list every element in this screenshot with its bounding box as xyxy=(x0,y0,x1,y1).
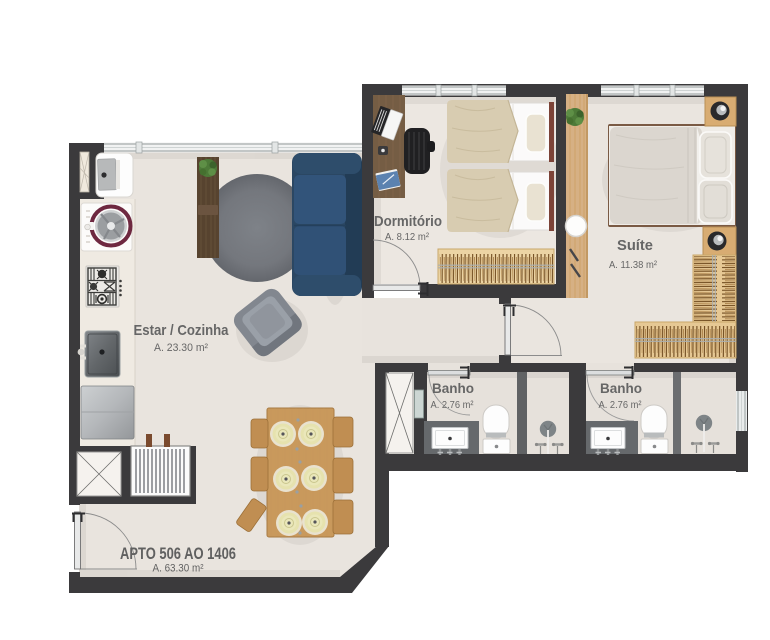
svg-text:A. 8.12 m²: A. 8.12 m² xyxy=(385,231,429,243)
svg-text:Estar / Cozinha: Estar / Cozinha xyxy=(134,322,230,339)
svg-text:A. 2.76 m²: A. 2.76 m² xyxy=(599,399,642,411)
svg-text:Suíte: Suíte xyxy=(617,237,653,254)
svg-text:A. 11.38 m²: A. 11.38 m² xyxy=(609,259,657,271)
svg-text:Banho: Banho xyxy=(432,380,474,396)
svg-text:A. 2.76 m²: A. 2.76 m² xyxy=(431,399,474,411)
svg-text:Dormitório: Dormitório xyxy=(374,213,442,230)
svg-text:APTO 506 AO 1406: APTO 506 AO 1406 xyxy=(120,545,236,563)
svg-text:A. 23.30 m²: A. 23.30 m² xyxy=(154,342,208,354)
svg-text:A. 63.30 m²: A. 63.30 m² xyxy=(153,563,204,575)
svg-text:Banho: Banho xyxy=(600,380,642,396)
